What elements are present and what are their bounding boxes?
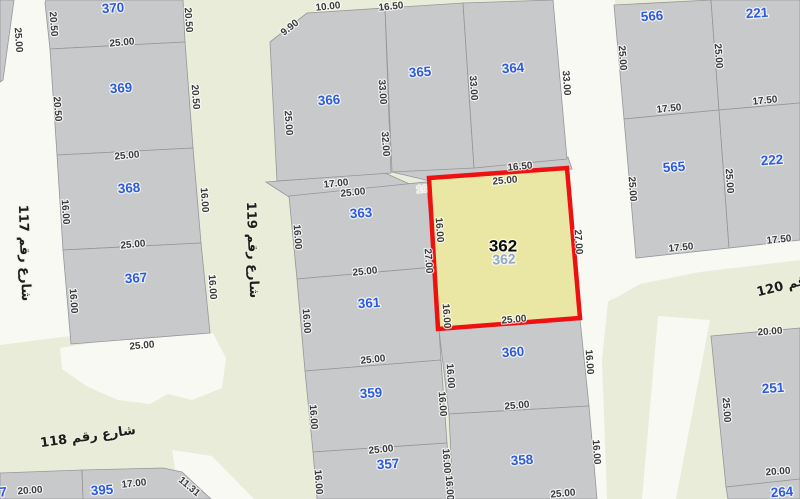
dimension-label: 16.00 [440, 448, 453, 474]
dimension-label: 16.00 [67, 288, 80, 314]
dimension-label: 20.00 [757, 326, 783, 339]
cadastral-map[interactable]: 3703693683673663653643633613593573603585… [0, 0, 800, 499]
dimension-label: 25.00 [626, 176, 639, 202]
dimension-label: 25.00 [712, 43, 725, 69]
parcel-368[interactable] [57, 148, 201, 250]
dimension-label: 25.00 [129, 339, 155, 352]
parcel-number-370: 370 [101, 0, 125, 16]
parcel-number-360: 360 [501, 344, 525, 361]
parcel-number-358: 358 [510, 452, 534, 469]
parcel-367[interactable] [63, 243, 210, 344]
cadastral-map-canvas[interactable]: 3703693683673663653643633613593573603585… [0, 0, 800, 499]
parcel-number-369: 369 [109, 80, 133, 97]
parcel-number-368: 368 [117, 180, 141, 197]
parcel-359[interactable] [305, 360, 447, 452]
dimension-label: 16.00 [583, 349, 596, 375]
parcel-number-565: 565 [662, 159, 686, 176]
parcel-number-264: 264 [770, 484, 794, 499]
parcel-369[interactable] [50, 42, 193, 155]
parcel-number-367: 367 [124, 270, 148, 287]
dimension-label: 25.00 [120, 238, 146, 251]
parcel-number-357: 357 [376, 456, 400, 473]
dimension-label: 20.50 [51, 96, 64, 122]
dimension-label: 25.00 [616, 45, 629, 71]
parcel-number-251: 251 [761, 380, 785, 397]
dimension-label: 16.00 [433, 217, 446, 243]
parcel-number-364: 364 [501, 60, 525, 77]
parcel-number-7: 7 [0, 484, 7, 499]
selected-parcel-number-faded: 362 [492, 250, 516, 267]
dimension-label: 16.00 [436, 391, 449, 417]
dimension-label: 25.00 [12, 27, 25, 53]
parcel-566[interactable] [614, 0, 719, 119]
parcel-360[interactable] [439, 319, 589, 414]
dimension-label: 33.00 [467, 75, 480, 101]
dimension-label: 16.00 [206, 274, 219, 300]
dimension-label: 16.00 [440, 303, 453, 329]
dimension-label: 25.00 [550, 487, 576, 499]
dimension-label: 25.00 [114, 149, 140, 162]
dimension-label: 16.00 [590, 439, 603, 465]
dimension-label: 16.00 [312, 469, 325, 495]
dimension-label: 16.00 [291, 224, 304, 250]
dimension-label: 16.00 [444, 363, 457, 389]
dimension-label: 25.00 [723, 168, 736, 194]
dimension-label: 20.50 [47, 11, 60, 37]
dimension-label: 16.00 [443, 475, 456, 499]
dimension-label: 25.00 [504, 399, 530, 412]
dimension-label: 20.50 [189, 84, 202, 110]
parcel-number-566: 566 [640, 8, 664, 25]
parcel-365[interactable] [385, 3, 474, 172]
dimension-label: 33.00 [560, 70, 573, 96]
parcel-565[interactable] [624, 110, 729, 258]
dimension-label: 27.00 [572, 229, 585, 255]
dimension-label: 20.00 [765, 466, 791, 479]
dimension-label: 27.00 [422, 248, 435, 274]
dimension-label: 16.50 [507, 160, 533, 173]
dimension-label: 16.00 [198, 187, 211, 213]
parcel-number-361: 361 [357, 295, 381, 312]
dimension-label: 16.00 [300, 308, 313, 334]
parcel-number-395: 395 [90, 482, 114, 499]
dimension-label: 25.00 [282, 110, 295, 136]
parcel-number-363: 363 [349, 205, 373, 222]
parcel-number-359: 359 [359, 385, 383, 402]
parcel-number-222: 222 [760, 152, 784, 169]
dimension-label: 25.00 [109, 36, 135, 49]
dimension-label: 32.00 [379, 131, 392, 157]
parcel-number-365: 365 [408, 64, 432, 81]
dimension-label: 20.00 [17, 485, 43, 498]
dimension-label: 16.00 [59, 199, 72, 225]
parcel-number-366: 366 [317, 92, 341, 109]
dimension-label: 25.00 [501, 313, 527, 326]
dimension-label: 25.00 [720, 397, 733, 423]
dimension-label: 25.00 [492, 174, 518, 187]
dimension-label: 16.00 [307, 404, 320, 430]
parcel-number-221: 221 [745, 5, 769, 22]
dimension-label: 20.50 [182, 7, 195, 33]
dimension-label: 33.00 [376, 79, 389, 105]
